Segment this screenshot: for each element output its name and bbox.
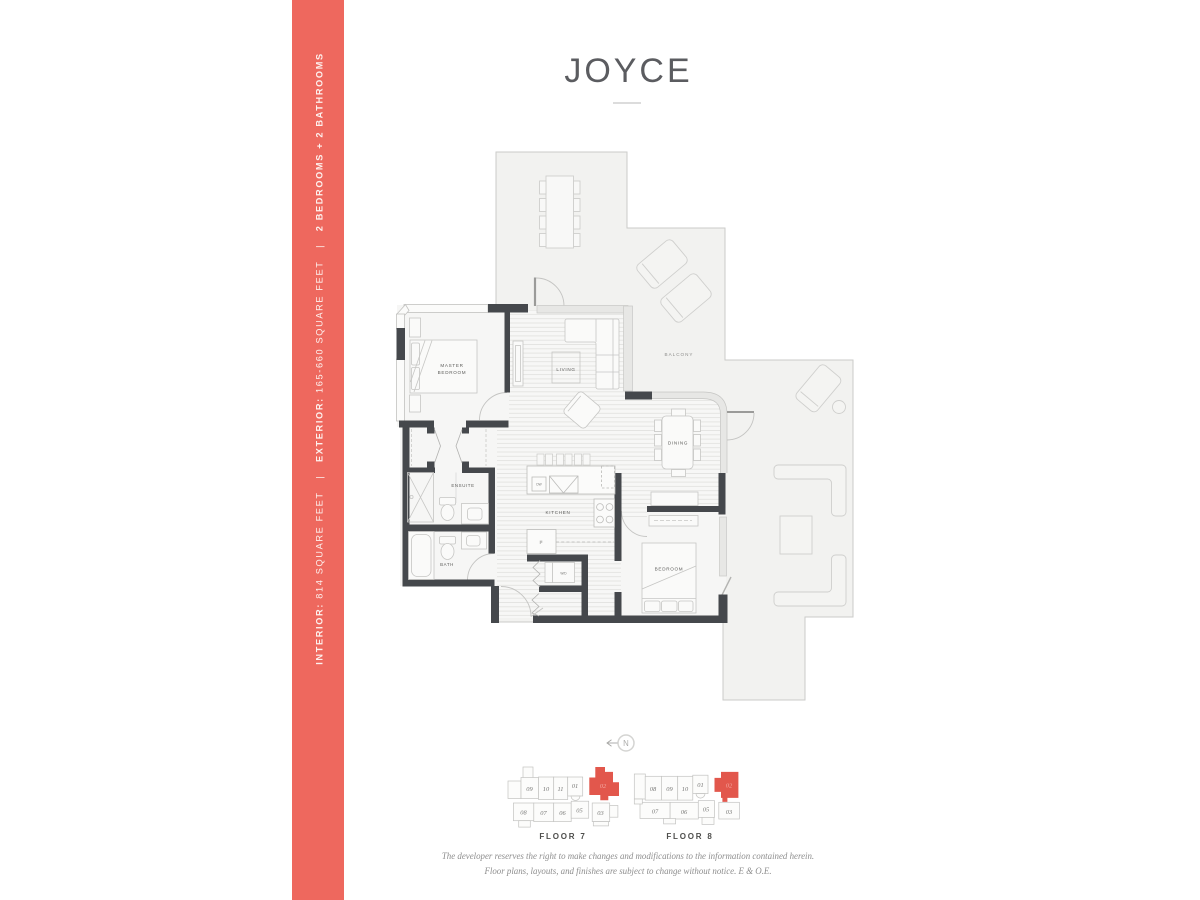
svg-text:DINING: DINING bbox=[668, 441, 688, 446]
svg-text:BEDROOM: BEDROOM bbox=[438, 370, 467, 375]
svg-text:FLOOR 8: FLOOR 8 bbox=[666, 832, 713, 841]
svg-text:07: 07 bbox=[652, 809, 659, 816]
svg-text:10: 10 bbox=[543, 786, 550, 793]
svg-text:08: 08 bbox=[520, 810, 527, 817]
svg-text:08: 08 bbox=[650, 786, 657, 793]
svg-text:01: 01 bbox=[697, 782, 703, 789]
svg-text:05: 05 bbox=[576, 808, 582, 815]
svg-text:09: 09 bbox=[526, 786, 533, 793]
svg-text:BEDROOM: BEDROOM bbox=[655, 567, 684, 572]
svg-text:09: 09 bbox=[666, 786, 673, 793]
svg-text:DW: DW bbox=[536, 483, 541, 487]
svg-text:FLOOR 7: FLOOR 7 bbox=[539, 832, 586, 841]
svg-text:06: 06 bbox=[681, 809, 688, 816]
svg-text:03: 03 bbox=[726, 809, 732, 816]
svg-text:06: 06 bbox=[559, 810, 566, 817]
svg-text:MASTER: MASTER bbox=[440, 363, 463, 368]
svg-text:LIVING: LIVING bbox=[556, 367, 575, 372]
svg-text:02: 02 bbox=[600, 783, 607, 790]
svg-text:01: 01 bbox=[572, 783, 578, 790]
svg-text:05: 05 bbox=[703, 807, 709, 814]
svg-text:N: N bbox=[623, 739, 629, 748]
svg-text:BATH: BATH bbox=[440, 562, 454, 567]
svg-text:03: 03 bbox=[597, 810, 603, 817]
svg-text:11: 11 bbox=[558, 786, 564, 793]
svg-text:02: 02 bbox=[726, 783, 733, 790]
svg-text:07: 07 bbox=[540, 810, 547, 817]
svg-text:W/D: W/D bbox=[560, 572, 567, 576]
svg-text:10: 10 bbox=[682, 786, 689, 793]
svg-text:BALCONY: BALCONY bbox=[665, 352, 694, 357]
svg-text:ENSUITE: ENSUITE bbox=[451, 483, 474, 488]
svg-text:KITCHEN: KITCHEN bbox=[545, 510, 570, 515]
